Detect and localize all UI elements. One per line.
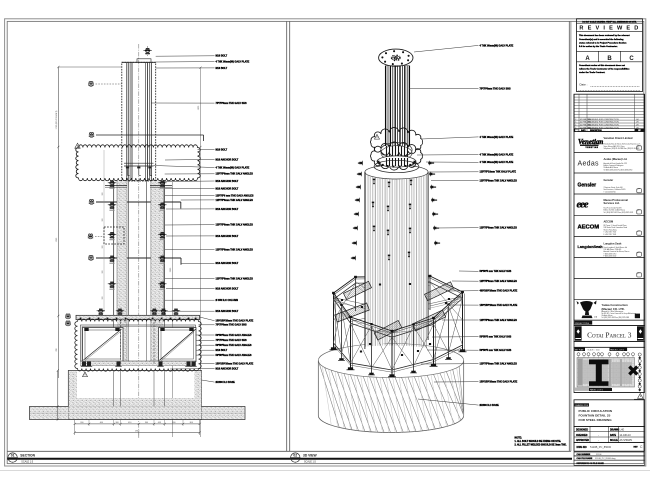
svg-text:2963: 2963 (135, 430, 139, 432)
svg-text:14-JUN-10: 14-JUN-10 (620, 435, 632, 437)
svg-text:1. ALL BOLT SHOULD BE FIXING: 1. ALL BOLT SHOULD BE FIXING ON SITE. (515, 440, 562, 443)
svg-text:Aedas (Macau) Ltd.: Aedas (Macau) Ltd. (604, 157, 628, 161)
svg-text:-: - (295, 460, 296, 463)
svg-text:Tel: (853) 2837-2622 Fax: (85: Tel: (853) 2837-2622 Fax: (853) 2837-267… (604, 212, 634, 214)
svg-text:75*75*6mm THK GALV SHS: 75*75*6mm THK GALV SHS (216, 102, 247, 105)
svg-text:-: - (12, 460, 13, 463)
svg-text:Cotai Parcel 3: Cotai Parcel 3 (587, 330, 632, 339)
svg-text:300: 300 (102, 246, 104, 249)
svg-text:2. ALL FILLET WELDED SHOULD B: 2. ALL FILLET WELDED SHOULD BE 3mm THK. (515, 443, 567, 446)
svg-text:50*50*5 mm THK GALV SHS: 50*50*5 mm THK GALV SHS (480, 336, 512, 339)
svg-text:FOR STEEL DRAWING: FOR STEEL DRAWING (579, 418, 613, 422)
svg-text:150*150*10mm THK GALV PLATE: 150*150*10mm THK GALV PLATE (480, 304, 518, 307)
svg-text:B: B (607, 56, 612, 62)
svg-text:PUBLIC CIRCULATION: PUBLIC CIRCULATION (579, 409, 613, 413)
svg-text:50*50*5 mm THK GALV SHS: 50*50*5 mm THK GALV SHS (480, 270, 512, 273)
svg-text:status referred to in Pro: status referred to in Project Procedure … (579, 41, 627, 44)
svg-text:125*75*6mm THK GALV ANGLES: 125*75*6mm THK GALV ANGLES (216, 173, 254, 176)
svg-text:DO NOT SCALE DRAWING. VERIFY A: DO NOT SCALE DRAWING. VERIFY ALL DIMENSI… (582, 20, 637, 23)
svg-text:SCALE 1:5: SCALE 1:5 (21, 461, 33, 464)
svg-text:125*75*6mm THK GALV ANGLES: 125*75*6mm THK GALV ANGLES (480, 319, 518, 322)
svg-text:REV: REV (634, 447, 639, 449)
svg-text:460*200*16mm THK GALV PLATE: 460*200*16mm THK GALV PLATE (480, 290, 518, 293)
svg-text:125*75*6mm THK GALV ANGLES: 125*75*6mm THK GALV ANGLES (480, 280, 518, 283)
svg-text:Services Ltd.: Services Ltd. (604, 201, 620, 205)
svg-text:M16 ANCHOR BOLT: M16 ANCHOR BOLT (216, 188, 239, 191)
svg-text:M16 BOLT: M16 BOLT (216, 67, 228, 70)
svg-text:M16 ANCHOR BOLT: M16 ANCHOR BOLT (216, 180, 239, 183)
svg-text:800: 800 (190, 422, 193, 424)
svg-text:Telephone: (853) 81-18-2888: Telephone: (853) 81-18-2888 Fax: (853) 8… (604, 148, 640, 150)
svg-text:Gensler: Gensler (578, 183, 597, 189)
svg-text:Ø 350 R.C COLUMN: Ø 350 R.C COLUMN (216, 299, 239, 302)
svg-text:300: 300 (80, 422, 83, 424)
svg-text:V E N E T I A N: V E N E T I A N (586, 146, 599, 149)
svg-text:RE-ISSUED FOR CONSTRUCTION: RE-ISSUED FOR CONSTRUCTION (588, 125, 619, 127)
svg-text:75*75*6mm THK GALV SHS: 75*75*6mm THK GALV SHS (216, 324, 247, 327)
svg-text:DWG NO: DWG NO (577, 446, 587, 449)
svg-text:02: 02 (293, 453, 297, 457)
svg-text:RE-ISSUED FOR CONSTRUCTION: RE-ISSUED FOR CONSTRUCTION (588, 119, 619, 121)
svg-text:under the Trade Contract.: under the Trade Contract. (579, 71, 605, 74)
svg-text:5110B_PC_85000: 5110B_PC_85000 (590, 445, 612, 449)
svg-text:Aedas: Aedas (578, 161, 600, 168)
svg-text:125*75*6mm THK GALV ANGLES: 125*75*6mm THK GALV ANGLES (480, 227, 518, 230)
svg-text:SECTION: SECTION (20, 454, 35, 458)
svg-text:1705 (FFL TO BOLT): 1705 (FFL TO BOLT) (56, 110, 58, 129)
svg-text:FOUNTAIN DETAIL 25: FOUNTAIN DETAIL 25 (579, 414, 611, 418)
svg-text:T 1.415.433.3700: T 1.415.433.3700 (604, 191, 616, 193)
svg-text:Consultant review of this: Consultant review of this document does … (579, 64, 625, 67)
svg-text:T (853) 2833 1710: T (853) 2833 1710 (604, 253, 617, 255)
svg-text:(Macau) CO. LTD.: (Macau) CO. LTD. (602, 307, 625, 311)
svg-text:M16 ANCHOR BOLT: M16 ANCHOR BOLT (216, 288, 239, 291)
svg-text:DRAWING TITLE: DRAWING TITLE (575, 404, 589, 407)
svg-text:464: 464 (100, 422, 103, 424)
svg-text:CAD NUMBER: CAD NUMBER (577, 453, 591, 456)
svg-text:4 THK 90mm(W) GALV PLATE: 4 THK 90mm(W) GALV PLATE (216, 166, 250, 169)
svg-text:150*150*10mm THK GALV PLATE: 150*150*10mm THK GALV PLATE (216, 320, 254, 323)
svg-text:449: 449 (158, 422, 161, 424)
svg-text:AS SHOWN: AS SHOWN (620, 439, 633, 442)
svg-text:AECOM: AECOM (604, 219, 614, 223)
svg-text:M16 BOLT: M16 BOLT (216, 349, 228, 352)
svg-text:PARCEL 1, LOT 2: PARCEL 1, LOT 2 (610, 348, 624, 351)
svg-text:300: 300 (102, 271, 104, 274)
svg-text:300: 300 (102, 297, 104, 300)
svg-text:SCALE 1 : 1000: SCALE 1 : 1000 (588, 348, 600, 351)
svg-text:Tel: (853) 2875-3189 Fax: (8: Tel: (853) 2875-3189 Fax: (853) 2875-318… (602, 317, 630, 319)
svg-text:4 THK 90mm(W) GALV PLATE: 4 THK 90mm(W) GALV PLATE (216, 61, 250, 64)
svg-text:SCALE 1:5: SCALE 1:5 (304, 461, 316, 464)
svg-text:Gensler: Gensler (604, 178, 614, 182)
svg-text:CHECKED: CHECKED (576, 435, 588, 437)
svg-text:relieve the Trade Contracto: relieve the Trade Contractor of its resp… (579, 68, 630, 71)
svg-text:300: 300 (116, 422, 119, 424)
svg-text:4 THK 90mm(W) GALV PLATE: 4 THK 90mm(W) GALV PLATE (480, 161, 514, 164)
svg-text:4 THK 90mm(W) GALV PLATE: 4 THK 90mm(W) GALV PLATE (480, 154, 514, 157)
svg-text:Venetian Orient Limited: Venetian Orient Limited (604, 136, 633, 140)
svg-text:C: C (629, 56, 634, 62)
svg-text:150*150*10mm THK GALV PLATE: 150*150*10mm THK GALV PLATE (216, 363, 254, 366)
svg-text:LangdonSeah: LangdonSeah (578, 245, 604, 249)
svg-text:F +852 2317 7609: F +852 2317 7609 (604, 234, 617, 236)
svg-text:M16 BOLT: M16 BOLT (216, 55, 228, 58)
svg-text:300: 300 (172, 422, 175, 424)
svg-text:PROJECT TITLE: PROJECT TITLE (575, 323, 590, 325)
svg-text:A: A (585, 56, 590, 62)
svg-text:300: 300 (145, 422, 148, 424)
svg-text:DRAWN: DRAWN (610, 429, 619, 432)
svg-text:50*50*5 mm THK GALV SHS: 50*50*5 mm THK GALV SHS (480, 349, 512, 352)
svg-text:01: 01 (11, 453, 15, 457)
svg-text:125*75*10mm THK GALV PLATE: 125*75*10mm THK GALV PLATE (480, 171, 517, 174)
svg-text:125*75*6mm THK GALV ANGLES: 125*75*6mm THK GALV ANGLES (216, 224, 254, 227)
svg-text:50*50*5mm THK GALV ANGLES: 50*50*5mm THK GALV ANGLES (216, 344, 252, 347)
svg-text:Langdon Seah: Langdon Seah (604, 241, 622, 245)
svg-text:NOTE:: NOTE: (515, 437, 523, 440)
svg-text:R E V I E W E D: R E V I E W E D (579, 26, 639, 32)
svg-text:APPROVED: APPROVED (576, 439, 589, 442)
svg-text:KEY PLAN: KEY PLAN (575, 348, 584, 351)
svg-text:75*75*6mm THK GALV SHS: 75*75*6mm THK GALV SHS (480, 88, 511, 91)
svg-text:DESIGNED: DESIGNED (576, 430, 588, 432)
svg-text:3D VIEW: 3D VIEW (303, 454, 317, 458)
svg-text:RE-ISSUED FOR CONSTRUCTION: RE-ISSUED FOR CONSTRUCTION (588, 122, 619, 124)
svg-text:125*75*6mm THK GALV ANGLES: 125*75*6mm THK GALV ANGLES (216, 199, 254, 202)
svg-text:125*75*6 mm THK GALV ANGLES: 125*75*6 mm THK GALV ANGLES (216, 194, 254, 197)
svg-text:50*50*5mm THK GALV ANGLES: 50*50*5mm THK GALV ANGLES (216, 334, 252, 337)
svg-text:125*75*6mm THK GALV ANGLES: 125*75*6mm THK GALV ANGLES (216, 248, 254, 251)
svg-text:M16 ANCHOR BOLT: M16 ANCHOR BOLT (216, 262, 239, 265)
svg-text:F (853) 2833 1532: F (853) 2833 1532 (604, 256, 617, 258)
svg-text:Tel (853) 2833-1055 Fax (853): Tel (853) 2833-1055 Fax (853) 2833-0950 (604, 169, 633, 171)
svg-text:125*75*6mm THK GALV ANGLES: 125*75*6mm THK GALV ANGLES (216, 277, 254, 280)
svg-text:M16 BOLT: M16 BOLT (216, 148, 228, 151)
svg-text:M16 ANCHOR BOLT: M16 ANCHOR BOLT (216, 158, 239, 161)
svg-text:150*150*10mm THK GALV PLATE: 150*150*10mm THK GALV PLATE (480, 381, 518, 384)
svg-text:Date :: Date : (580, 83, 588, 87)
svg-text:T +852 2317 7000: T +852 2317 7000 (604, 232, 617, 234)
svg-text:450: 450 (128, 422, 131, 424)
svg-text:Consultant(s) and is accord: Consultant(s) and is accorded the follow… (579, 38, 624, 41)
svg-text:4 THK 90mm(W) GALV PLATE: 4 THK 90mm(W) GALV PLATE (480, 136, 514, 139)
svg-text:REFERENCE ON FILE NAME: REFERENCE ON FILE NAME (577, 462, 605, 465)
svg-text:M16 ANCHOR BOLT: M16 ANCHOR BOLT (216, 208, 239, 211)
svg-text:M16 ANCHOR BOLT: M16 ANCHOR BOLT (216, 368, 239, 371)
svg-text:This document has been rev: This document has been reviewed by the r… (579, 34, 630, 37)
svg-text:300: 300 (102, 193, 104, 196)
svg-text:5.4 for action by the Tra: 5.4 for action by the Trade Contractor. (579, 45, 618, 48)
svg-text:50*50*5mm THK GALV ANGLES: 50*50*5mm THK GALV ANGLES (216, 354, 252, 357)
svg-text:SCALE: SCALE (610, 439, 618, 442)
svg-text:Ø2300 R.C BASE: Ø2300 R.C BASE (216, 381, 236, 384)
svg-text:75*75*6mm THK GALV SHS: 75*75*6mm THK GALV SHS (216, 339, 247, 342)
svg-text:DATE: DATE (610, 434, 617, 437)
svg-text:M16 ANCHOR BOLT: M16 ANCHOR BOLT (216, 310, 239, 313)
svg-text:125*75*6mm THK GALV ANGLES: 125*75*6mm THK GALV ANGLES (480, 179, 518, 182)
svg-text:LHO: LHO (620, 430, 625, 432)
svg-text:eee: eee (577, 200, 589, 211)
svg-text:125*75*6mm THK GALV ANGLES: 125*75*6mm THK GALV ANGLES (480, 363, 518, 366)
svg-text:AECOM: AECOM (578, 225, 600, 231)
svg-text:Ø2300 R.C BASE: Ø2300 R.C BASE (480, 404, 500, 407)
svg-text:300: 300 (102, 219, 104, 222)
svg-text:M16 ANCHOR BOLT: M16 ANCHOR BOLT (216, 235, 239, 238)
svg-text:4 THK 90mm(W) GALV PLATE: 4 THK 90mm(W) GALV PLATE (480, 44, 514, 47)
svg-text:CAD FILE NAME: CAD FILE NAME (577, 457, 593, 460)
